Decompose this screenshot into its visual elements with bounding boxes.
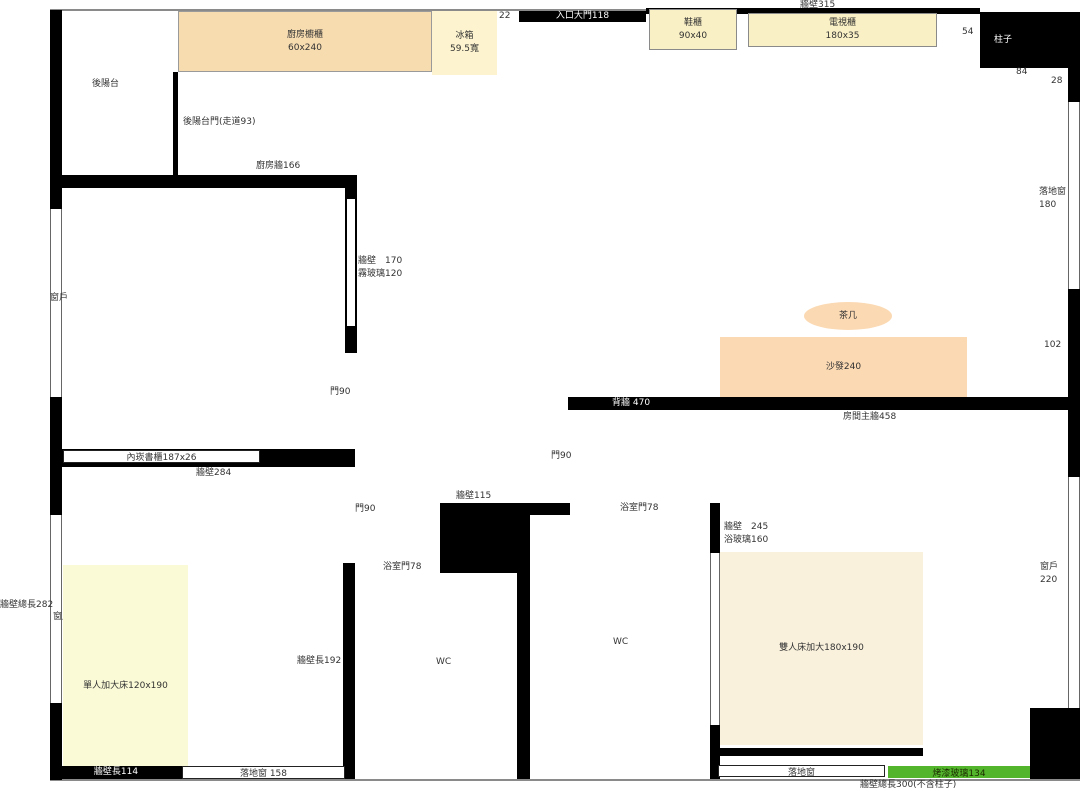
label-frost-wall: 牆壁 170 霧玻璃120 bbox=[358, 255, 402, 281]
balcony-divider-wall bbox=[173, 72, 178, 175]
floor-plan: 牆壁315 22 入口大門118 柱子 54 84 28 窗戶 窗戶178 牆壁… bbox=[0, 0, 1080, 791]
double-bed: 雙人床加大180x190 bbox=[720, 552, 923, 745]
label-right-window180: 落地窗 180 bbox=[1039, 186, 1066, 212]
pillar-label: 柱子 bbox=[994, 35, 1012, 46]
fridge-label: 冰箱 bbox=[455, 30, 473, 43]
label-painted-glass: 烤漆玻璃134 bbox=[932, 766, 985, 779]
label-left-window: 窗戶 bbox=[50, 292, 68, 304]
tea-table: 茶几 bbox=[804, 302, 892, 330]
label-total-300: 牆壁總長300(不含柱子) bbox=[860, 779, 956, 791]
label-seg-28: 28 bbox=[1051, 75, 1062, 87]
kitchen-cabinet-size: 60x240 bbox=[288, 42, 322, 55]
label-bath-door-left: 浴室門78 bbox=[383, 561, 421, 573]
double-bed-label: 雙人床加大180x190 bbox=[779, 642, 864, 655]
label-wc1: WC bbox=[436, 656, 451, 668]
label-wall-192: 牆壁長192 bbox=[297, 655, 341, 667]
living-back-wall: 背牆 470 bbox=[568, 397, 1080, 410]
label-right-window220: 窗戶 220 bbox=[1040, 561, 1058, 587]
right-window180-glass bbox=[1068, 102, 1080, 289]
label-frost-wall-line1: 牆壁 170 bbox=[358, 255, 402, 268]
label-frost-wall-line2: 霧玻璃120 bbox=[358, 268, 402, 281]
pillar: 柱子 bbox=[980, 12, 1080, 68]
label-seg-22: 22 bbox=[499, 10, 510, 22]
entry-door-label: 入口大門118 bbox=[556, 11, 609, 22]
bookcase-label: 內崁書櫃187x26 bbox=[127, 450, 197, 463]
bottom-window-158: 落地窗 158 bbox=[182, 766, 345, 779]
label-right-window180-line1: 落地窗 bbox=[1039, 186, 1066, 199]
right-wall-mid bbox=[1068, 289, 1080, 477]
label-living-door: 門90 bbox=[330, 386, 350, 398]
label-seg-54: 54 bbox=[962, 26, 973, 38]
label-wall-245-line2: 浴玻璃160 bbox=[724, 534, 768, 547]
wall-114: 牆壁長114 bbox=[50, 766, 182, 779]
label-bottom-window-158: 落地窗 158 bbox=[240, 766, 287, 779]
tv-cabinet-label: 電視櫃 bbox=[829, 17, 856, 30]
label-kitchen-wall: 廚房牆166 bbox=[256, 160, 300, 172]
kitchen-cabinet-label: 廚房櫥櫃 bbox=[287, 29, 323, 42]
label-balcony-door: 後陽台門(走道93) bbox=[183, 116, 255, 128]
bedroom-bottom-wall bbox=[720, 748, 923, 756]
bathroom-block-ext bbox=[530, 503, 570, 515]
kitchen-cabinet: 廚房櫥櫃 60x240 bbox=[178, 11, 432, 72]
label-right-window180-line2: 180 bbox=[1039, 199, 1066, 212]
label-wall-115: 牆壁115 bbox=[456, 490, 491, 502]
bathroom-block-wall bbox=[440, 503, 530, 573]
frost-glass-pane bbox=[347, 199, 355, 326]
label-wall-245-line1: 牆壁 245 bbox=[724, 521, 768, 534]
right-wall-top bbox=[1068, 66, 1080, 102]
bottom-right-pillar bbox=[1030, 708, 1080, 779]
label-right-window220-line1: 窗戶 bbox=[1040, 561, 1058, 574]
bath-glass-pane bbox=[710, 553, 720, 725]
tv-cabinet: 電視櫃 180x35 bbox=[748, 13, 937, 47]
fridge-size: 59.5寬 bbox=[450, 43, 479, 56]
label-right-window220-line2: 220 bbox=[1040, 574, 1058, 587]
label-total-282: 牆壁總長282 bbox=[0, 599, 53, 611]
sofa-label: 沙發240 bbox=[826, 361, 861, 374]
label-seg-84: 84 bbox=[1016, 66, 1027, 78]
entry-door-bar: 入口大門118 bbox=[519, 11, 646, 22]
label-balcony: 後陽台 bbox=[92, 78, 119, 90]
label-study-door: 門90 bbox=[355, 503, 375, 515]
back-wall-label: 背牆 470 bbox=[612, 398, 650, 409]
label-wc2: WC bbox=[613, 636, 628, 648]
right-window220-glass bbox=[1068, 477, 1080, 708]
shoe-cabinet-size: 90x40 bbox=[679, 30, 707, 43]
painted-glass-bar: 烤漆玻璃134 bbox=[888, 766, 1030, 778]
single-bed-label: 單人加大床120x190 bbox=[83, 680, 168, 693]
label-wall-114: 牆壁長114 bbox=[94, 767, 138, 778]
label-bath-door-right: 浴室門78 bbox=[620, 502, 658, 514]
wall-192 bbox=[343, 563, 355, 779]
single-bed: 單人加大床120x190 bbox=[63, 565, 188, 766]
label-main-wall-458: 房間主牆458 bbox=[843, 411, 896, 423]
shoe-cabinet-label: 鞋櫃 bbox=[684, 17, 702, 30]
tv-cabinet-size: 180x35 bbox=[826, 30, 860, 43]
sofa: 沙發240 bbox=[720, 337, 967, 397]
fridge: 冰箱 59.5寬 bbox=[432, 11, 497, 75]
built-in-bookcase: 內崁書櫃187x26 bbox=[63, 450, 260, 463]
shoe-cabinet: 鞋櫃 90x40 bbox=[649, 9, 737, 50]
label-wall-284: 牆壁284 bbox=[196, 467, 231, 479]
label-hall-door: 門90 bbox=[551, 450, 571, 462]
bathroom-mid-wall bbox=[517, 573, 530, 779]
label-bottom-window-right: 落地窗 bbox=[788, 765, 815, 778]
kitchen-wall bbox=[55, 175, 357, 188]
label-seg-102: 102 bbox=[1044, 339, 1061, 351]
bottom-window-right: 落地窗 bbox=[718, 765, 885, 777]
tea-table-label: 茶几 bbox=[839, 310, 857, 323]
bath-right-wall-top bbox=[710, 503, 720, 553]
label-wall-245: 牆壁 245 浴玻璃160 bbox=[724, 521, 768, 547]
